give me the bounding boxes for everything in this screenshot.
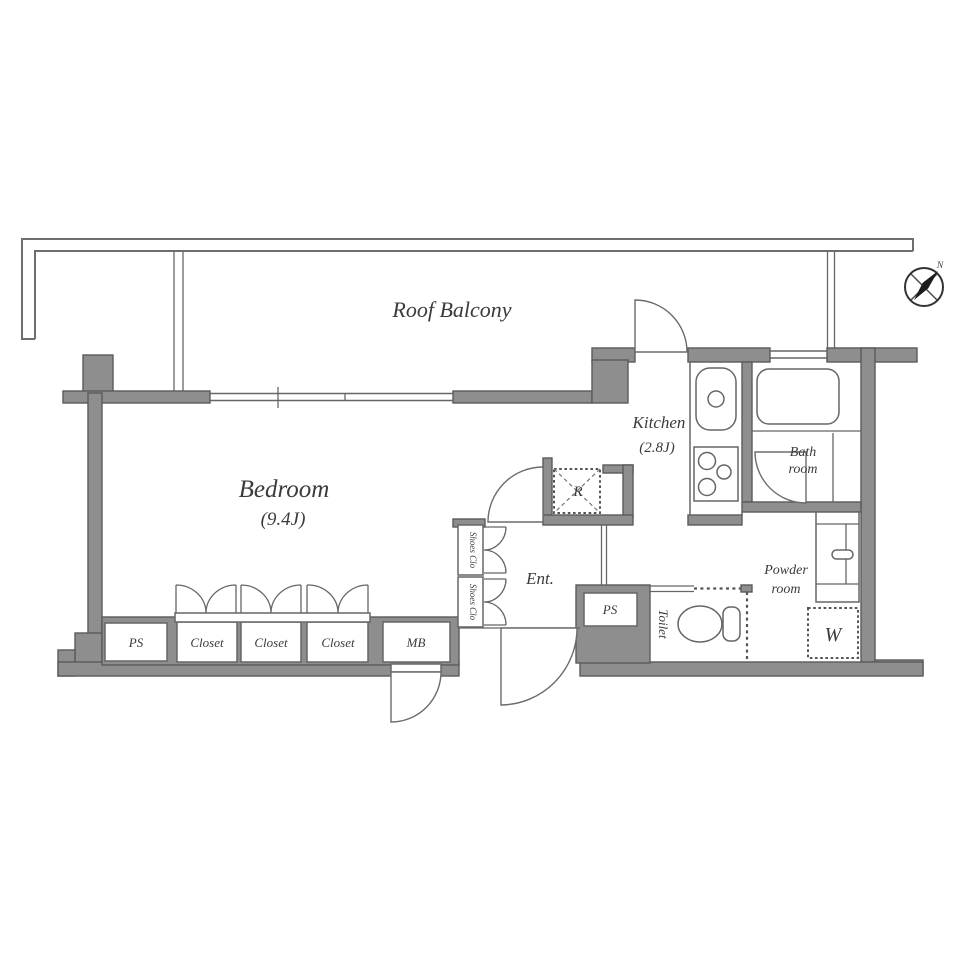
roof-balcony-label: Roof Balcony — [391, 297, 511, 322]
toilet-label: Toilet — [656, 609, 671, 639]
meter-box-door — [391, 672, 441, 722]
balcony-divider — [174, 251, 183, 392]
shoes-closet-doors — [484, 527, 506, 625]
meter-box-label: MB — [406, 635, 426, 650]
balcony-partition — [828, 251, 835, 348]
closet-doors — [176, 585, 368, 613]
powder-room-label-line1: Powder — [763, 563, 808, 578]
burner-icon — [699, 453, 716, 470]
bedroom-window — [210, 394, 453, 401]
burner-icon — [699, 479, 716, 496]
shoes-closet-label: Shoes Clo — [468, 584, 478, 621]
toilet-bowl — [678, 606, 722, 642]
shoes-closet-label: Shoes Clo — [468, 532, 478, 569]
pipe-space-label-2: PS — [602, 602, 618, 617]
pipe-space-label: PS — [128, 635, 144, 650]
bath-window — [770, 351, 827, 358]
floor-plan-page: N Roof Balcony Bedroom (9.4J) Kitchen (2… — [0, 0, 960, 962]
kitchen-label: Kitchen — [632, 413, 686, 432]
closet-label: Closet — [321, 635, 355, 650]
toilet-tank — [723, 607, 740, 641]
closet-front — [175, 613, 370, 622]
bath-room-label-line1: Bath — [790, 445, 816, 460]
closet-label: Closet — [254, 635, 288, 650]
burner-icon — [717, 465, 731, 479]
bedroom-label: Bedroom — [239, 476, 330, 503]
partition-walls — [602, 525, 695, 592]
bathtub — [757, 369, 839, 424]
entrance-door — [501, 628, 577, 705]
compass: N — [905, 261, 944, 306]
floor-plan-canvas: N Roof Balcony Bedroom (9.4J) Kitchen (2… — [0, 0, 960, 962]
kitchen-size-label: (2.8J) — [639, 440, 674, 456]
bath-room-label-line2: room — [788, 462, 817, 477]
vanity-sink — [832, 550, 853, 559]
closet-label: Closet — [190, 635, 224, 650]
compass-north-label: N — [936, 261, 944, 271]
refrigerator-label: R — [572, 484, 582, 500]
entrance-label: Ent. — [525, 569, 554, 588]
washer-label: W — [825, 624, 844, 646]
bedroom-door — [488, 467, 543, 522]
compass-needle-icon — [914, 271, 938, 300]
powder-room-label-line2: room — [771, 582, 800, 597]
kitchen-balcony-door — [635, 300, 687, 352]
bedroom-size-label: (9.4J) — [261, 509, 306, 530]
faucet-icon — [708, 391, 724, 407]
